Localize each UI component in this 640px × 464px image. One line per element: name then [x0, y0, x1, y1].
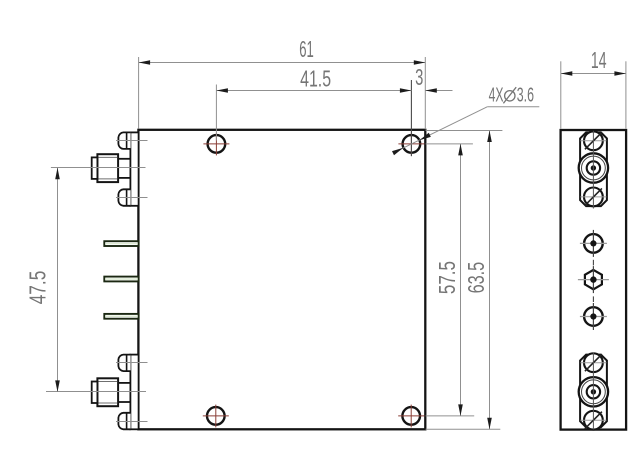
svg-text:63.5: 63.5 [463, 262, 489, 294]
svg-text:57.5: 57.5 [434, 261, 460, 294]
svg-text:3: 3 [415, 64, 423, 90]
svg-text:3.6: 3.6 [517, 84, 534, 106]
svg-text:61: 61 [299, 36, 314, 62]
svg-text:4X: 4X [489, 84, 504, 106]
svg-text:47.5: 47.5 [25, 271, 51, 305]
svg-text:14: 14 [591, 47, 607, 73]
svg-text:41.5: 41.5 [300, 65, 331, 91]
